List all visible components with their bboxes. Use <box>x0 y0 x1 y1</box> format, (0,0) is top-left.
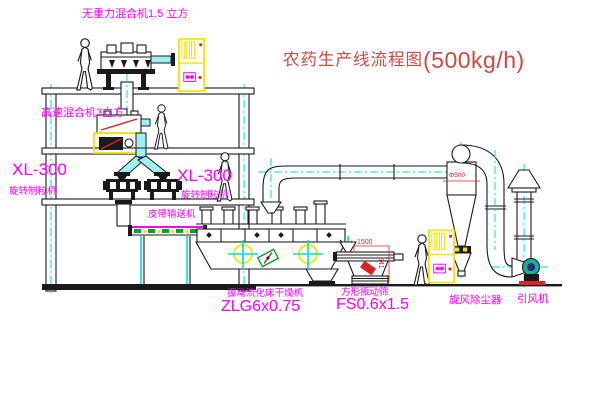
discharge-pipe <box>115 200 132 226</box>
label-granulator-center-model: XL-300 <box>177 167 232 184</box>
person-icon <box>77 39 92 90</box>
label-cyclone: 旋风除尘器 <box>449 295 502 306</box>
label-granulator-center-name: 旋转制粒机 <box>181 191 229 201</box>
flow-diagram: 农药生产线流程图(500kg/h) 无重力混合机1.5 立方 高速混合机3立方 … <box>0 0 600 403</box>
induced-draft-fan <box>512 258 545 285</box>
control-cabinet <box>179 39 204 91</box>
exhaust-duct <box>258 158 452 216</box>
label-dryer-model: ZLG6x0.75 <box>221 299 300 315</box>
dimension-cyclone: Φ500 <box>449 173 465 180</box>
dimension-screen-height: 541 <box>377 257 384 269</box>
label-granulator-left-name: 旋转制粒机 <box>9 187 57 197</box>
diagram-title: 农药生产线流程图(500kg/h) <box>283 46 525 74</box>
label-granulator-left-model: XL-300 <box>12 161 67 178</box>
dimension-screen-length: 1500 <box>357 239 373 246</box>
title-text: 农药生产线流程图 <box>283 51 423 69</box>
person-icon <box>414 235 429 285</box>
granulator-left <box>103 174 141 200</box>
title-capacity: (500kg/h) <box>423 47 525 73</box>
label-screen-model: FS0.6x1.5 <box>336 297 409 313</box>
label-belt-conveyor: 皮带输送机 <box>148 210 196 220</box>
person-icon <box>154 105 167 149</box>
ground-line <box>250 284 562 286</box>
control-cabinet <box>429 230 454 282</box>
connecting-pipe <box>461 145 548 277</box>
label-high-speed-mixer: 高速混合机3立方 <box>41 108 124 119</box>
fluid-bed-dryer <box>196 201 352 286</box>
label-zero-gravity-mixer: 无重力混合机1.5 立方 <box>82 9 188 20</box>
label-fan: 引风机 <box>517 294 549 305</box>
